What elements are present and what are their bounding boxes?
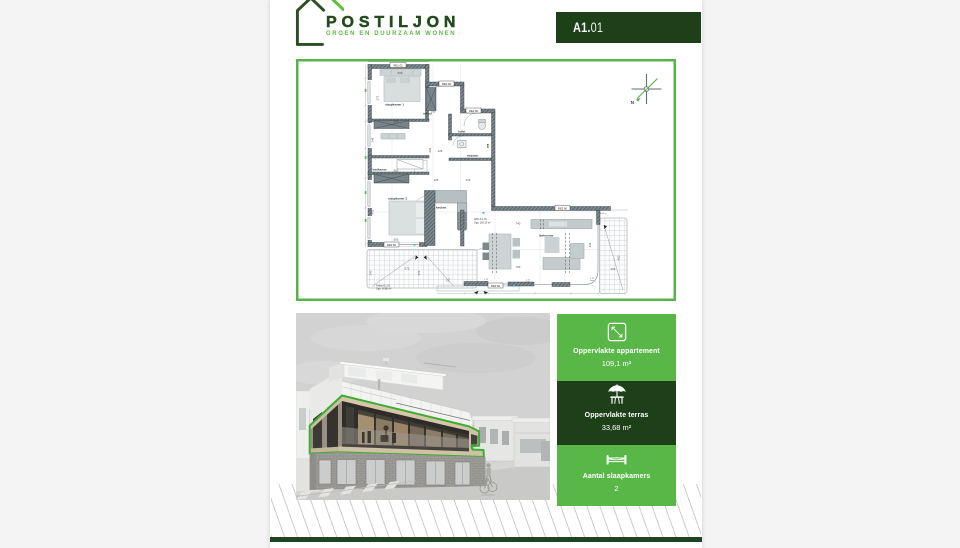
svg-text:500: 500: [394, 238, 399, 242]
svg-text:572: 572: [405, 267, 410, 271]
svg-text:slaapkamer 2: slaapkamer 2: [388, 197, 407, 201]
svg-text:RE2 60: RE2 60: [558, 206, 567, 210]
svg-text:190: 190: [431, 110, 436, 114]
svg-text:slaapkamer 1: slaapkamer 1: [385, 103, 404, 107]
svg-text:leefruimte: leefruimte: [539, 234, 554, 238]
svg-text:248: 248: [371, 137, 375, 142]
svg-text:500: 500: [394, 169, 399, 173]
svg-text:RE0 60: RE0 60: [491, 284, 500, 288]
svg-text:125: 125: [434, 178, 439, 182]
svg-text:RE1 02: RE1 02: [394, 63, 403, 67]
svg-text:wasplaats: wasplaats: [467, 155, 479, 158]
svg-text:126: 126: [438, 149, 443, 153]
svg-text:RE0 60: RE0 60: [387, 243, 396, 247]
svg-text:242: 242: [369, 270, 373, 275]
svg-text:Opp: 14.88 m²: Opp: 14.88 m²: [376, 288, 391, 291]
svg-text:RE0 60: RE0 60: [442, 82, 451, 86]
svg-text:436: 436: [588, 242, 592, 247]
svg-text:toilet: toilet: [458, 130, 465, 134]
svg-text:371: 371: [376, 95, 380, 100]
svg-text:4.63 m: 4.63 m: [600, 213, 606, 215]
svg-text:276: 276: [417, 270, 421, 275]
svg-text:750: 750: [516, 265, 521, 269]
svg-text:500: 500: [398, 71, 403, 75]
svg-text:loos: loos: [526, 282, 530, 284]
svg-text:badkamer: badkamer: [373, 168, 388, 172]
svg-text:loos: loos: [484, 281, 488, 283]
svg-text:500: 500: [394, 120, 399, 124]
svg-text:keuken: keuken: [436, 206, 447, 210]
svg-text:200: 200: [611, 267, 616, 271]
svg-text:740: 740: [516, 222, 521, 226]
svg-text:460: 460: [617, 255, 621, 260]
svg-text:loos: loos: [446, 281, 450, 283]
svg-text:RE2 60: RE2 60: [469, 109, 478, 113]
svg-text:279: 279: [466, 178, 471, 182]
svg-text:421: 421: [371, 209, 375, 214]
svg-text:Opp: 109.10 m²: Opp: 109.10 m²: [474, 221, 491, 224]
svg-text:loos: loos: [590, 280, 594, 282]
svg-text:604: 604: [428, 147, 432, 152]
